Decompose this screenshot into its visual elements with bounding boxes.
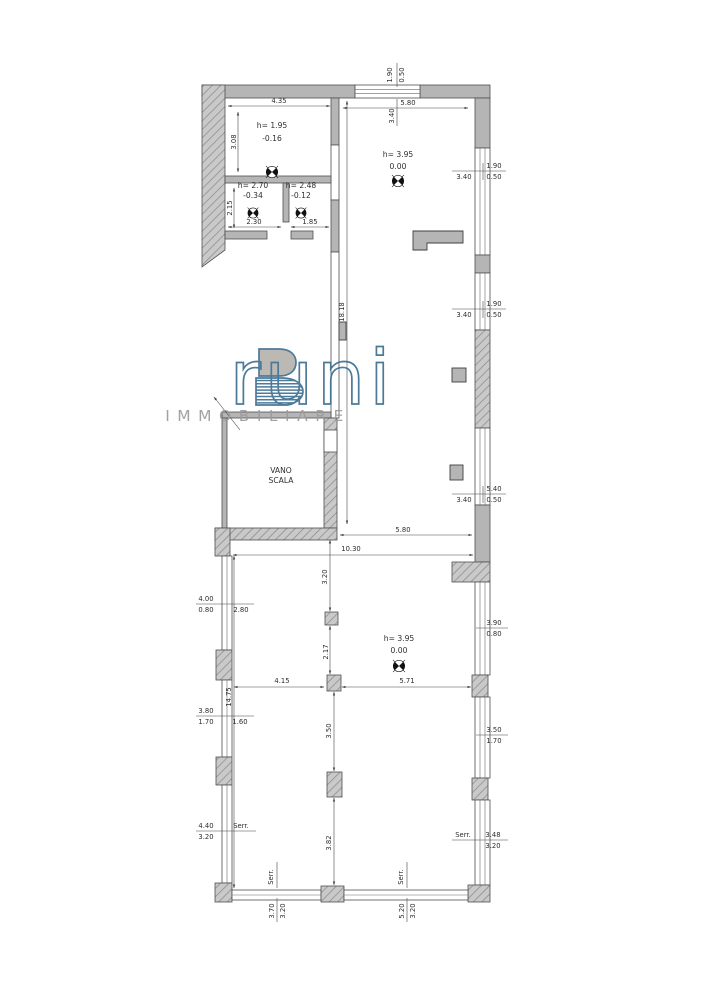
dim-col-bottom: 3.82	[325, 835, 333, 850]
dim-room1-depth: 3.08	[230, 134, 238, 149]
stairwell-door-opening	[324, 430, 337, 452]
right-wall-seg	[475, 505, 490, 562]
stairwell-left-wall	[222, 418, 227, 538]
corner-pier	[215, 883, 232, 902]
dim-passage-width: 5.80	[395, 526, 410, 534]
corner-pier	[468, 885, 490, 902]
divider-wall	[331, 98, 339, 145]
top-wall-right	[420, 85, 490, 98]
shutter-label: Serr.	[455, 831, 471, 839]
room3-height-label: h= 2.48	[286, 181, 317, 190]
dim-right-lwin1-width: 3.90	[486, 619, 501, 627]
dim-bottom-win2-width: 5.20	[398, 903, 406, 918]
rooms-bottom-wall	[225, 231, 267, 239]
dim-col-gap: 2.17	[322, 644, 330, 659]
dim-left-win1-width: 4.00	[198, 595, 213, 603]
counter-fixture	[413, 231, 463, 250]
dim-right-win2-sill: 0.50	[486, 311, 501, 319]
dim-col-right: 5.71	[399, 677, 414, 685]
benchmark-icon	[386, 169, 410, 193]
dim-right-lwin2-width: 3.50	[486, 726, 501, 734]
dim-left-win2-offset: 1.60	[232, 718, 247, 726]
dim-room2-depth: 2.15	[226, 200, 234, 215]
dim-top-window-height: 1.90	[386, 67, 394, 82]
dim-col-mid: 3.50	[325, 723, 333, 738]
left-pier	[216, 650, 232, 680]
dim-left-win1-sill: 0.80	[198, 606, 213, 614]
brand-logo-subtitle: IMMOBILIARE	[165, 407, 351, 425]
lower-room-height-label: h= 3.95	[384, 634, 415, 643]
dim-room2-width: 2.30	[246, 218, 261, 226]
stairwell-label-line1: VANO	[270, 466, 292, 475]
dim-right-win2-width: 3.40	[456, 311, 471, 319]
dim-right-win1-width: 3.40	[456, 173, 471, 181]
dim-room3-width: 1.85	[302, 218, 317, 226]
right-window-3	[475, 428, 490, 505]
room1-level-label: -0.16	[262, 134, 282, 143]
benchmark-icon	[387, 654, 411, 678]
shutter-label: Serr.	[233, 822, 249, 830]
corner-pier	[215, 528, 230, 556]
right-wall-hatched	[475, 330, 490, 428]
rooms-bottom-wall	[291, 231, 313, 239]
divider-wall	[331, 200, 339, 252]
dim-bottom-win1-width: 3.70	[268, 903, 276, 918]
dim-hall-width: 10.30	[341, 545, 360, 553]
room2-height-label: h= 2.70	[238, 181, 269, 190]
floorplan-page: 4.35 3.08 2.15 2.30 1.85 1.90 0.50 5.80 …	[0, 0, 706, 1000]
dim-top-window-width: 3.40	[388, 108, 396, 123]
dim-right-win3-sill: 0.50	[486, 496, 501, 504]
room3-level-label: -0.12	[291, 191, 311, 200]
dim-hall-length: 14.75	[225, 687, 233, 706]
divider-door-opening	[331, 145, 339, 200]
dim-right-win1-sill: 0.50	[486, 173, 501, 181]
right-protruding-pier	[452, 562, 490, 582]
shutter-label: Serr.	[267, 869, 275, 885]
right-pier	[472, 675, 488, 697]
floor-plan-drawing: 4.35 3.08 2.15 2.30 1.85 1.90 0.50 5.80 …	[0, 0, 706, 1000]
dim-upper-room-width: 5.80	[400, 99, 415, 107]
shutter-label: Serr.	[397, 869, 405, 885]
dim-left-win3-width: 4.40	[198, 822, 213, 830]
column	[327, 772, 342, 797]
dim-col-left: 4.15	[274, 677, 289, 685]
stairwell-label-line2: SCALA	[269, 476, 295, 485]
dim-right-win3-width: 3.40	[456, 496, 471, 504]
stairwell-bottom-wall	[215, 528, 337, 540]
dim-upper-room-length: 18.18	[338, 302, 346, 321]
upper-room-level-label: 0.00	[390, 162, 407, 171]
dim-right-lwin1-sill: 0.80	[486, 630, 501, 638]
right-wall-seg	[475, 98, 490, 148]
column	[327, 675, 341, 691]
dim-right-lwin3-sill: 3.20	[485, 842, 500, 850]
dim-left-win3-sill: 3.20	[198, 833, 213, 841]
dim-right-win1-height: 1.90	[486, 162, 501, 170]
right-shopfront-1	[475, 582, 490, 675]
dim-right-win3-height: 5.40	[486, 485, 501, 493]
dim-left-win2-width: 3.80	[198, 707, 213, 715]
right-pier	[472, 778, 488, 800]
left-pier	[216, 757, 232, 785]
walls	[202, 85, 490, 902]
room2-level-label: -0.34	[243, 191, 263, 200]
dim-top-window-sill: 0.50	[398, 67, 406, 82]
right-wall-seg	[475, 255, 490, 273]
top-window	[355, 85, 420, 98]
upper-room-height-label: h= 3.95	[383, 150, 414, 159]
dim-bottom-win2-sill: 3.20	[409, 903, 417, 918]
dim-right-lwin3-width: 3.48	[485, 831, 500, 839]
dim-room1-width: 4.35	[271, 97, 286, 105]
column	[325, 612, 338, 625]
lower-room-level-label: 0.00	[391, 646, 408, 655]
wall-fixture	[450, 465, 463, 480]
dim-right-win2-height: 1.90	[486, 300, 501, 308]
dim-right-lwin2-sill: 1.70	[486, 737, 501, 745]
dim-bottom-win1-sill: 3.20	[279, 903, 287, 918]
left-outer-wall	[202, 85, 225, 267]
brand-logo: runi IMMOBILIARE	[165, 333, 394, 425]
dim-col-top: 3.20	[321, 569, 329, 584]
dim-left-win1-offset: 2.80	[233, 606, 248, 614]
dim-left-win2-sill: 1.70	[198, 718, 213, 726]
bottom-center-pier	[321, 886, 344, 902]
wall-fixture	[452, 368, 466, 382]
room1-height-label: h= 1.95	[257, 121, 288, 130]
